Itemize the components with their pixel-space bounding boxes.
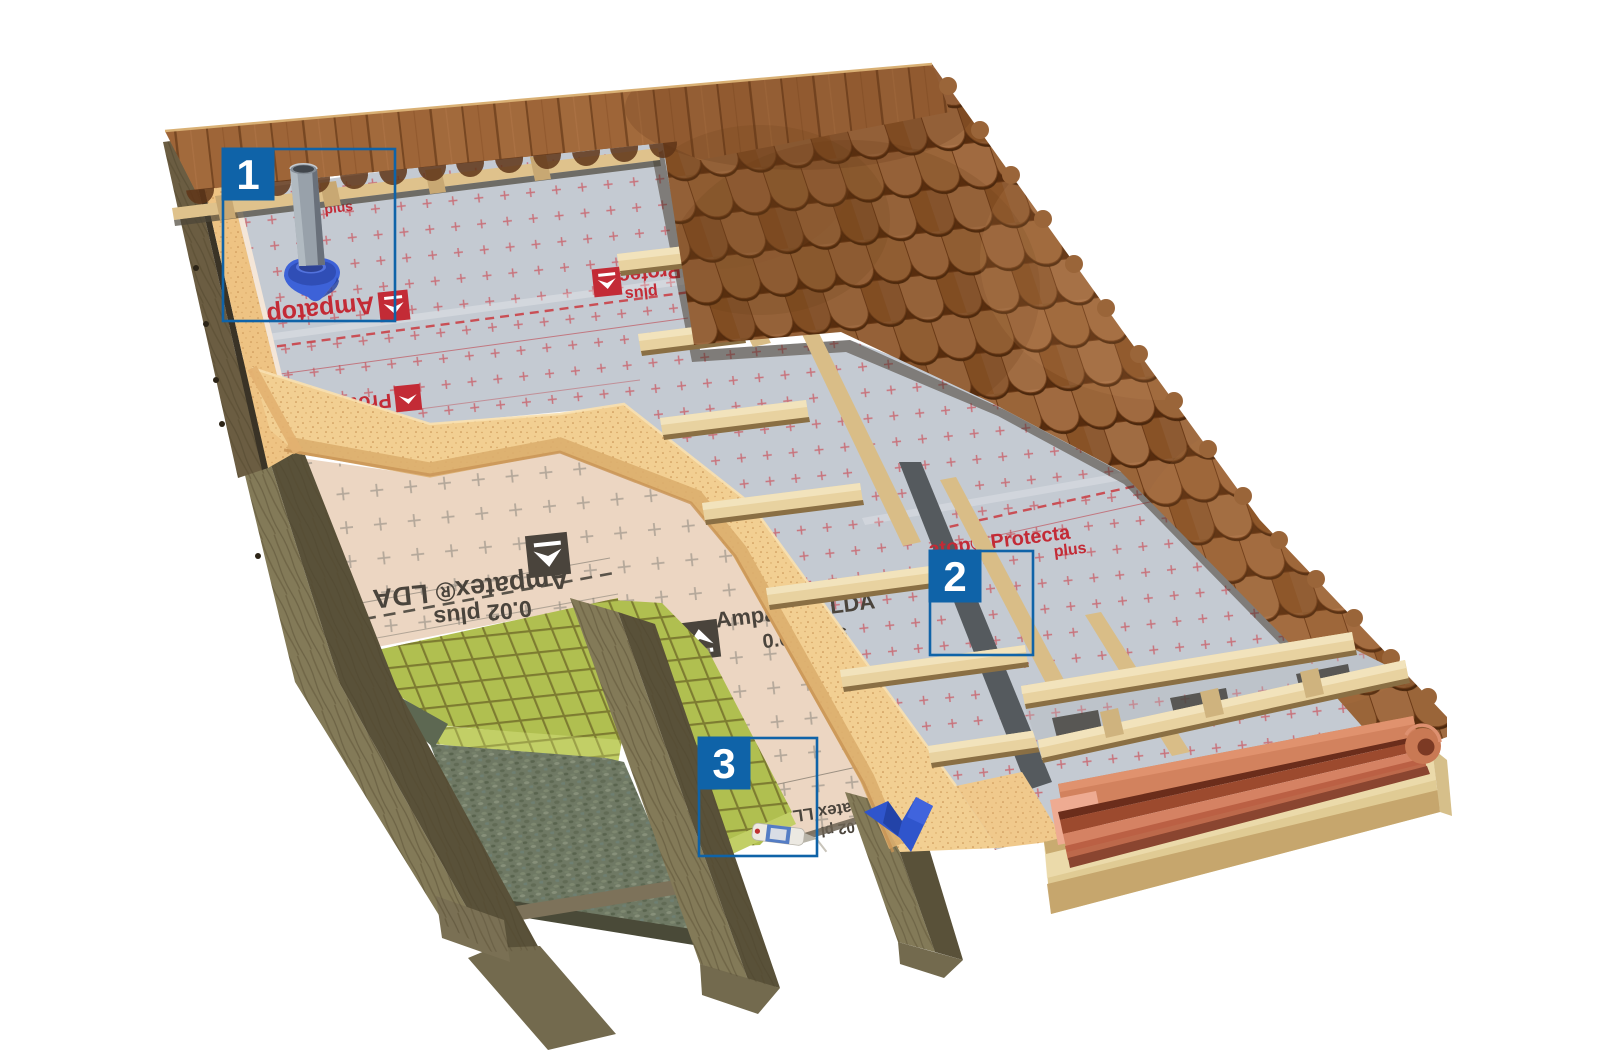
svg-text:3: 3	[712, 740, 735, 787]
svg-text:plus: plus	[624, 283, 659, 303]
svg-text:2: 2	[943, 553, 966, 600]
svg-text:1: 1	[236, 151, 259, 198]
